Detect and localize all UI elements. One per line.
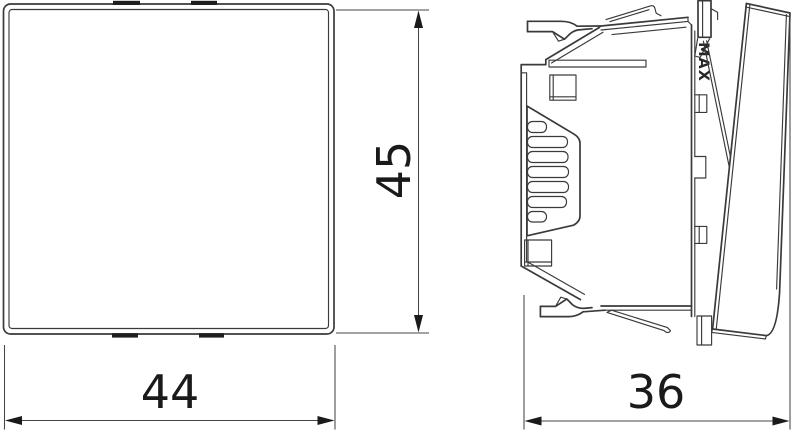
side-view: MAX: [521, 1, 790, 345]
dimension-arrow: [5, 416, 22, 425]
dimension-arrow: [414, 315, 423, 333]
dimension-arrow: [773, 417, 790, 426]
vent-slot: [528, 137, 568, 148]
bottom-latch: [521, 240, 605, 317]
side-mid-tab: [695, 157, 706, 179]
dimension-width: 44: [5, 345, 336, 430]
dimension-width-value: 44: [141, 365, 200, 419]
front-view: [4, 1, 335, 338]
top-latch: [521, 6, 661, 266]
dimension-arrow: [525, 417, 542, 426]
technical-drawing: MAX 45 44 36: [0, 0, 794, 432]
vent-slot: [528, 212, 547, 223]
mounting-tab: [113, 1, 140, 5]
vent-slot: [528, 122, 547, 133]
ventilation-grille: [527, 106, 580, 236]
vent-slot: [528, 182, 569, 193]
vent-slot: [528, 167, 569, 178]
inner-bar: [549, 60, 646, 67]
vent-slot: [528, 152, 569, 163]
foot-block: [697, 316, 712, 345]
side-clip: [695, 95, 707, 113]
dimension-drawing-canvas: MAX 45 44 36: [0, 0, 794, 432]
dimension-depth-value: 36: [627, 365, 686, 419]
dimension-arrow: [414, 11, 423, 29]
vent-slot: [528, 197, 567, 208]
dimension-arrow: [318, 416, 335, 425]
front-plate-outline: [4, 4, 335, 334]
mounting-tab: [199, 333, 224, 337]
dimension-height-value: 45: [367, 141, 421, 200]
side-clip: [695, 226, 707, 243]
dimension-height: 45: [336, 10, 429, 333]
mounting-tab: [191, 1, 217, 5]
mounting-tab: [112, 333, 138, 337]
rocker-plate: [703, 3, 790, 339]
